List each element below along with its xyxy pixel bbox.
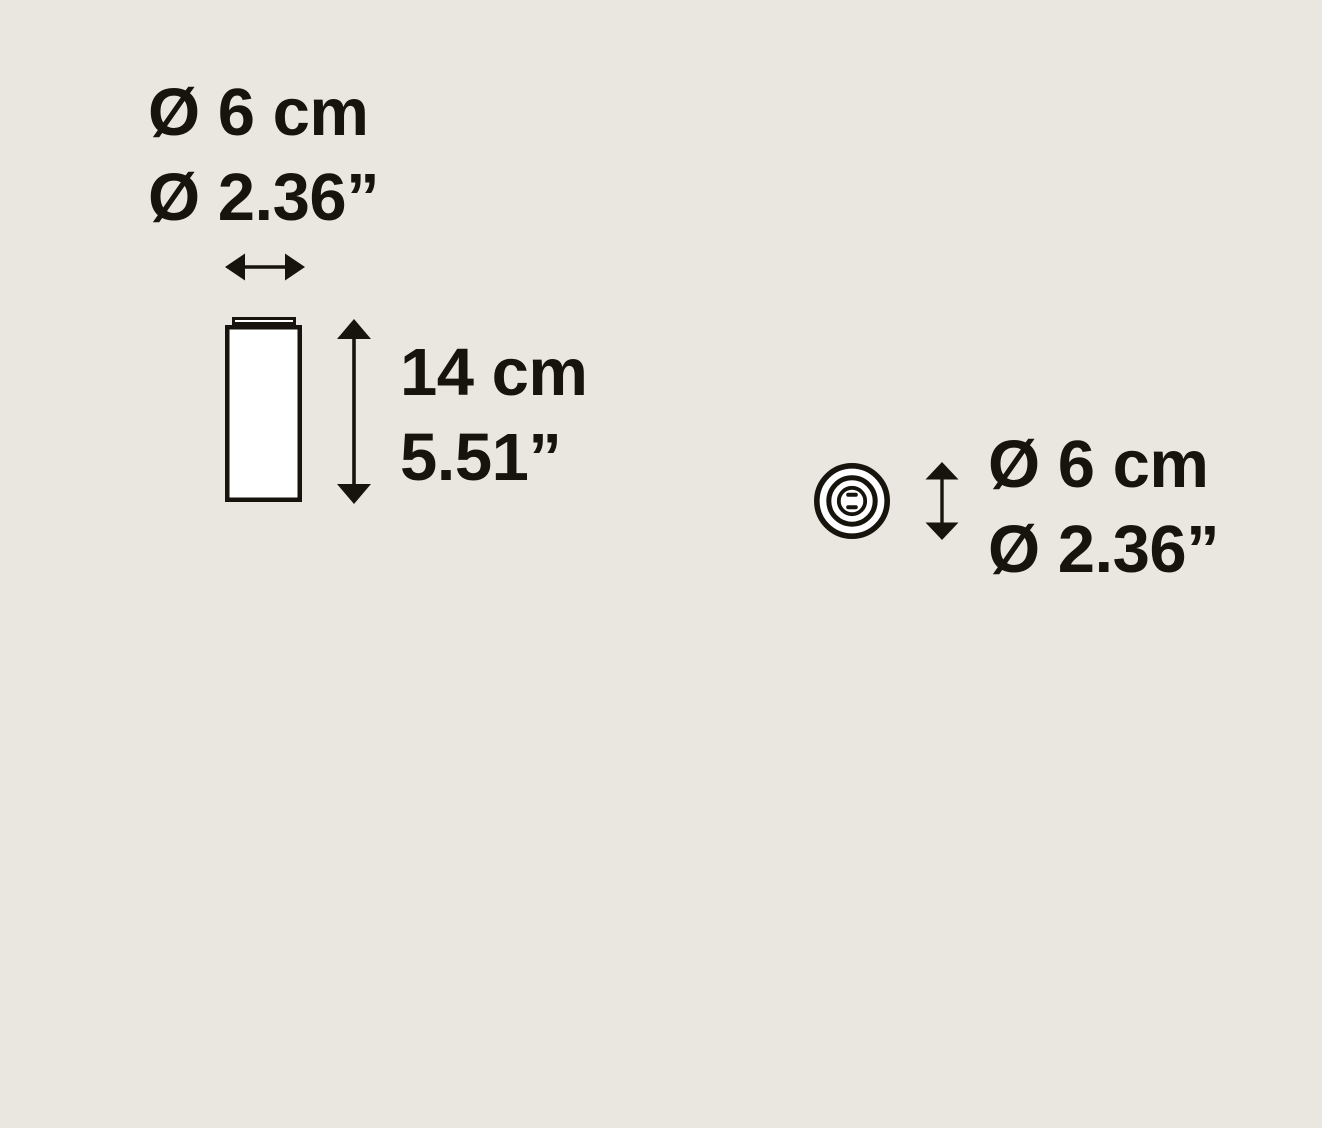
height-inch-value: 5.51” xyxy=(400,415,587,500)
width-cm-value: Ø 6 cm xyxy=(148,70,379,155)
diameter-dimension-label: Ø 6 cm Ø 2.36” xyxy=(988,422,1219,592)
diameter-arrow-bottom-head xyxy=(926,523,959,541)
diameter-inch-value: Ø 2.36” xyxy=(988,507,1219,592)
diameter-cm-value: Ø 6 cm xyxy=(988,422,1219,507)
horizontal-double-arrow-icon xyxy=(225,251,305,283)
cylinder-side-view xyxy=(220,312,308,507)
height-dimension-label: 14 cm 5.51” xyxy=(400,330,587,500)
vertical-double-arrow-icon xyxy=(925,462,959,540)
width-arrow-left-head xyxy=(225,254,245,281)
width-inch-value: Ø 2.36” xyxy=(148,155,379,240)
cylinder-cap xyxy=(234,319,295,324)
height-arrow-top-head xyxy=(337,319,371,339)
diameter-arrow-top-head xyxy=(926,462,959,480)
dimension-diagram: Ø 6 cm Ø 2.36” 14 cm 5.51” Ø 6 cm xyxy=(0,0,1322,1128)
width-dimension-label: Ø 6 cm Ø 2.36” xyxy=(148,70,379,240)
cylinder-body xyxy=(227,327,300,500)
top-view-lower-slot xyxy=(846,505,858,509)
height-arrow-bottom-head xyxy=(337,484,371,504)
vertical-double-arrow-icon xyxy=(336,319,372,504)
top-view-inner-circle xyxy=(839,488,865,514)
cylinder-top-view xyxy=(811,460,893,542)
top-view-upper-slot xyxy=(846,493,858,497)
height-cm-value: 14 cm xyxy=(400,330,587,415)
width-arrow-right-head xyxy=(285,254,305,281)
